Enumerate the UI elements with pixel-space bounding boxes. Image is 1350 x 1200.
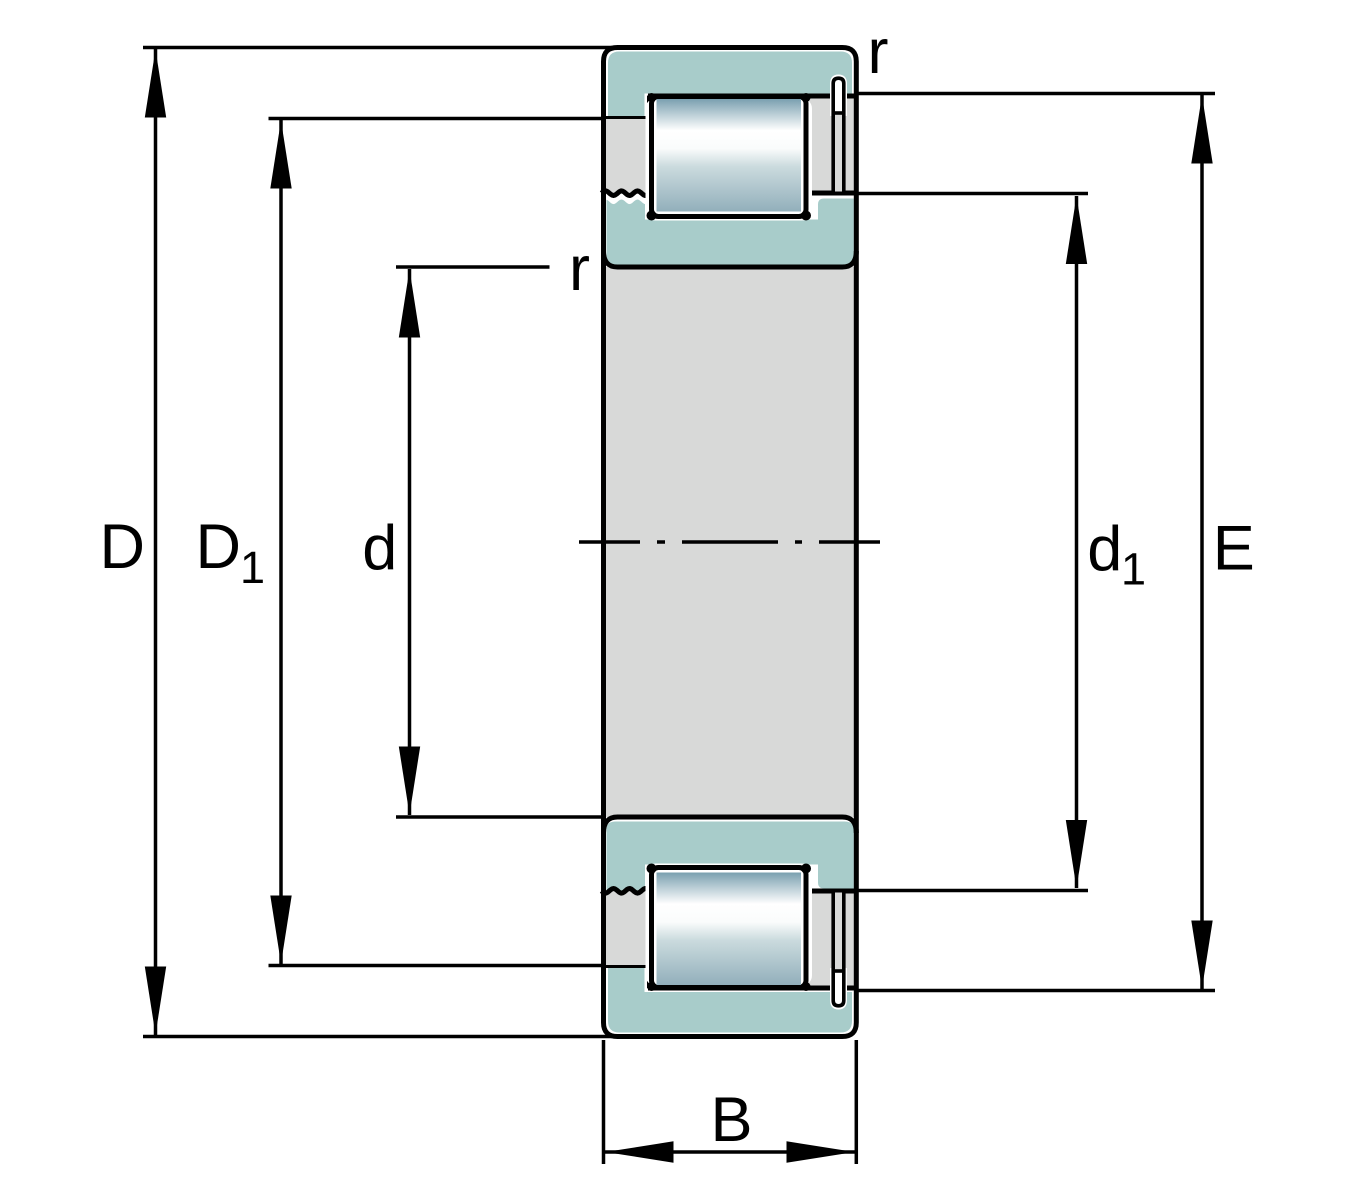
svg-text:B: B <box>711 1085 753 1155</box>
svg-text:1: 1 <box>240 542 265 593</box>
svg-text:1: 1 <box>1121 544 1146 595</box>
svg-text:r: r <box>868 17 889 87</box>
svg-text:E: E <box>1213 514 1255 584</box>
svg-text:r: r <box>569 234 590 304</box>
svg-text:D: D <box>100 512 146 582</box>
svg-text:d: d <box>362 514 397 584</box>
svg-text:D: D <box>196 512 242 582</box>
svg-text:d: d <box>1087 515 1122 585</box>
